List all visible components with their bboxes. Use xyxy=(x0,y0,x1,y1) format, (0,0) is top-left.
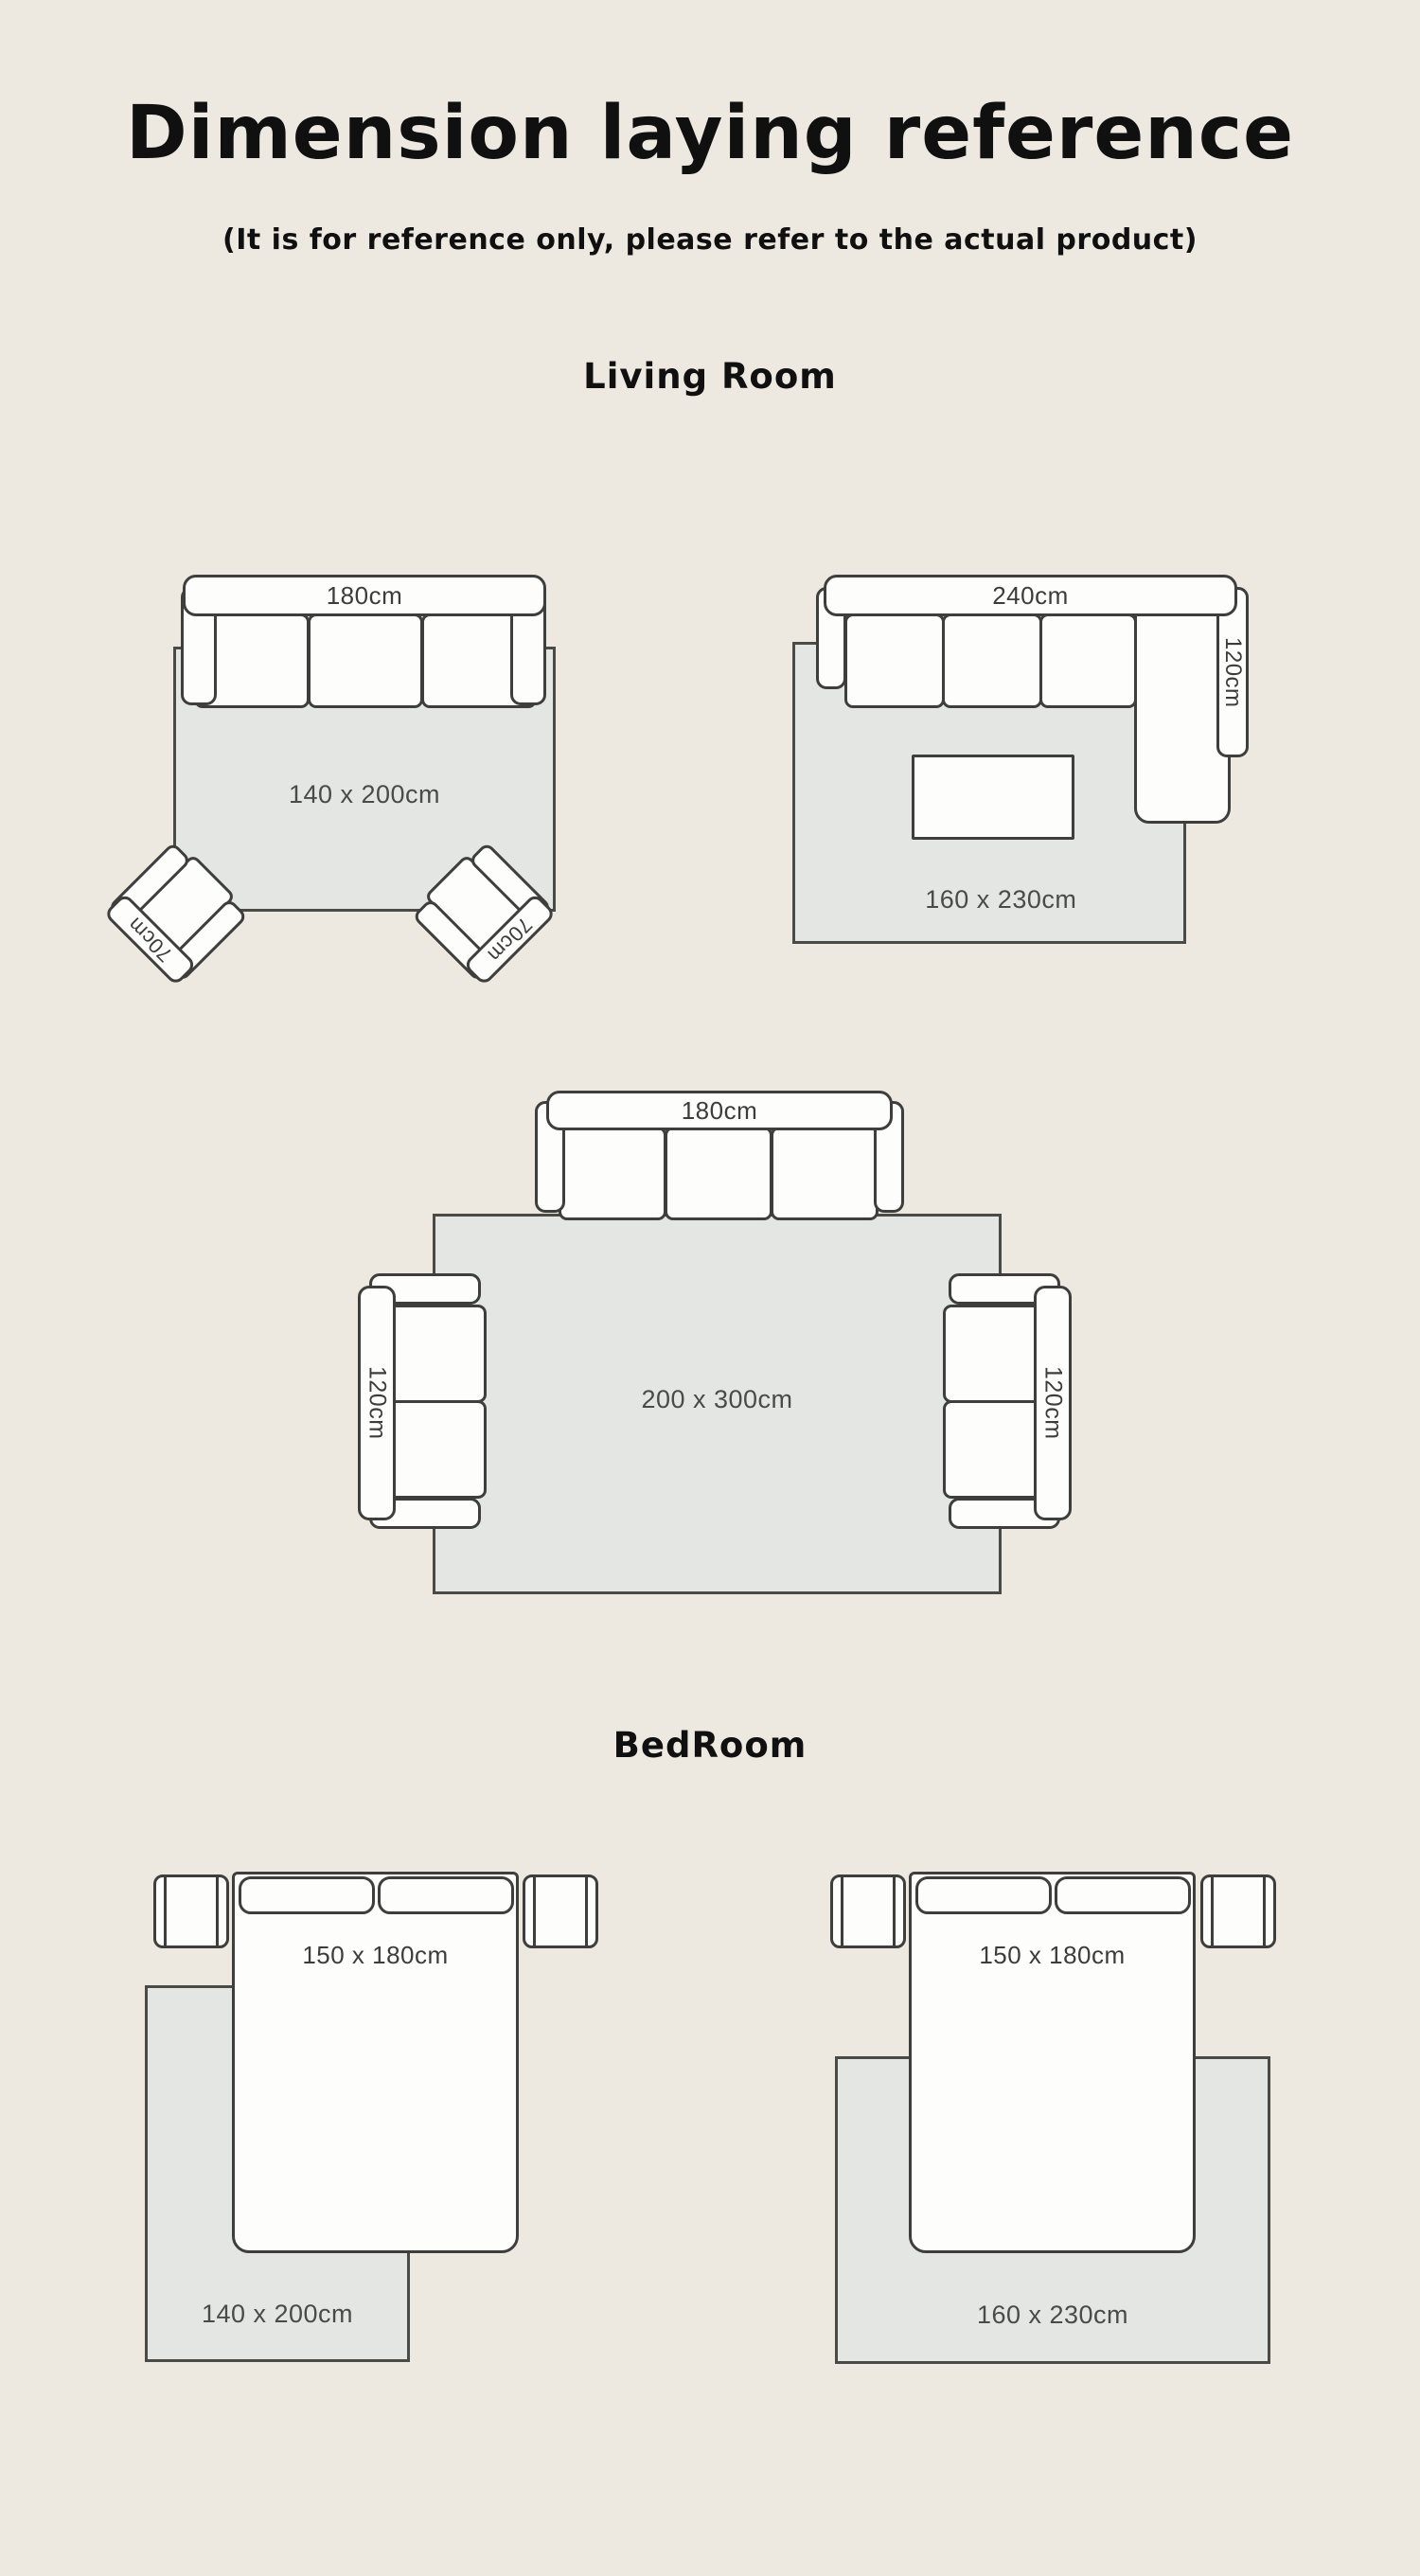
sectional-seat-cushion xyxy=(942,613,1042,708)
section-heading-bedroom: BedRoom xyxy=(0,1725,1420,1766)
sofa-seat-cushion xyxy=(308,613,423,708)
nightstand-left xyxy=(153,1874,229,1948)
loveseat-backrest-right: 120cm xyxy=(1034,1286,1072,1520)
section-heading-living-room: Living Room xyxy=(0,356,1420,397)
rug-size-label: 200 x 300cm xyxy=(641,1385,792,1414)
loveseat-width-label: 120cm xyxy=(1039,1366,1067,1440)
pillow-right xyxy=(1055,1876,1191,1914)
coffee-table xyxy=(912,755,1074,840)
sofa-width-label: 240cm xyxy=(992,581,1069,611)
infographic-canvas: Dimension laying reference (It is for re… xyxy=(0,0,1420,2576)
sofa-width-label: 180cm xyxy=(327,581,403,611)
pillow-left xyxy=(915,1876,1052,1914)
nightstand-right xyxy=(523,1874,598,1948)
rug-size-label: 140 x 200cm xyxy=(202,2300,353,2329)
sofa-seat-cushion xyxy=(665,1127,772,1220)
sofa-seat-cushion xyxy=(559,1127,666,1220)
sofa-backrest: 180cm xyxy=(183,575,546,616)
sofa-seat-cushion xyxy=(771,1127,879,1220)
bed-size-label: 150 x 180cm xyxy=(979,1941,1125,1970)
page-subtitle: (It is for reference only, please refer … xyxy=(0,223,1420,257)
nightstand-left xyxy=(830,1874,906,1948)
loveseat-width-label: 120cm xyxy=(364,1366,391,1440)
pillow-right xyxy=(378,1876,514,1914)
pillow-left xyxy=(239,1876,375,1914)
bed-size-label: 150 x 180cm xyxy=(302,1941,448,1970)
rug-size-label: 140 x 200cm xyxy=(289,780,440,809)
page-title: Dimension laying reference xyxy=(0,91,1420,176)
rug-size-label: 160 x 230cm xyxy=(925,885,1076,915)
loveseat-backrest-left: 120cm xyxy=(358,1286,396,1520)
sectional-backrest: 240cm xyxy=(824,575,1237,616)
sofa-backrest: 180cm xyxy=(546,1091,893,1130)
chaise-depth-label: 120cm xyxy=(1219,637,1246,708)
bed: 150 x 180cm xyxy=(232,1872,519,2253)
nightstand-right xyxy=(1200,1874,1276,1948)
rug: 200 x 300cm xyxy=(433,1214,1002,1594)
bed: 150 x 180cm xyxy=(909,1872,1196,2253)
sectional-seat-cushion xyxy=(844,613,945,708)
rug-size-label: 160 x 230cm xyxy=(977,2301,1128,2330)
sofa-width-label: 180cm xyxy=(682,1096,758,1126)
sectional-seat-cushion xyxy=(1039,613,1137,708)
